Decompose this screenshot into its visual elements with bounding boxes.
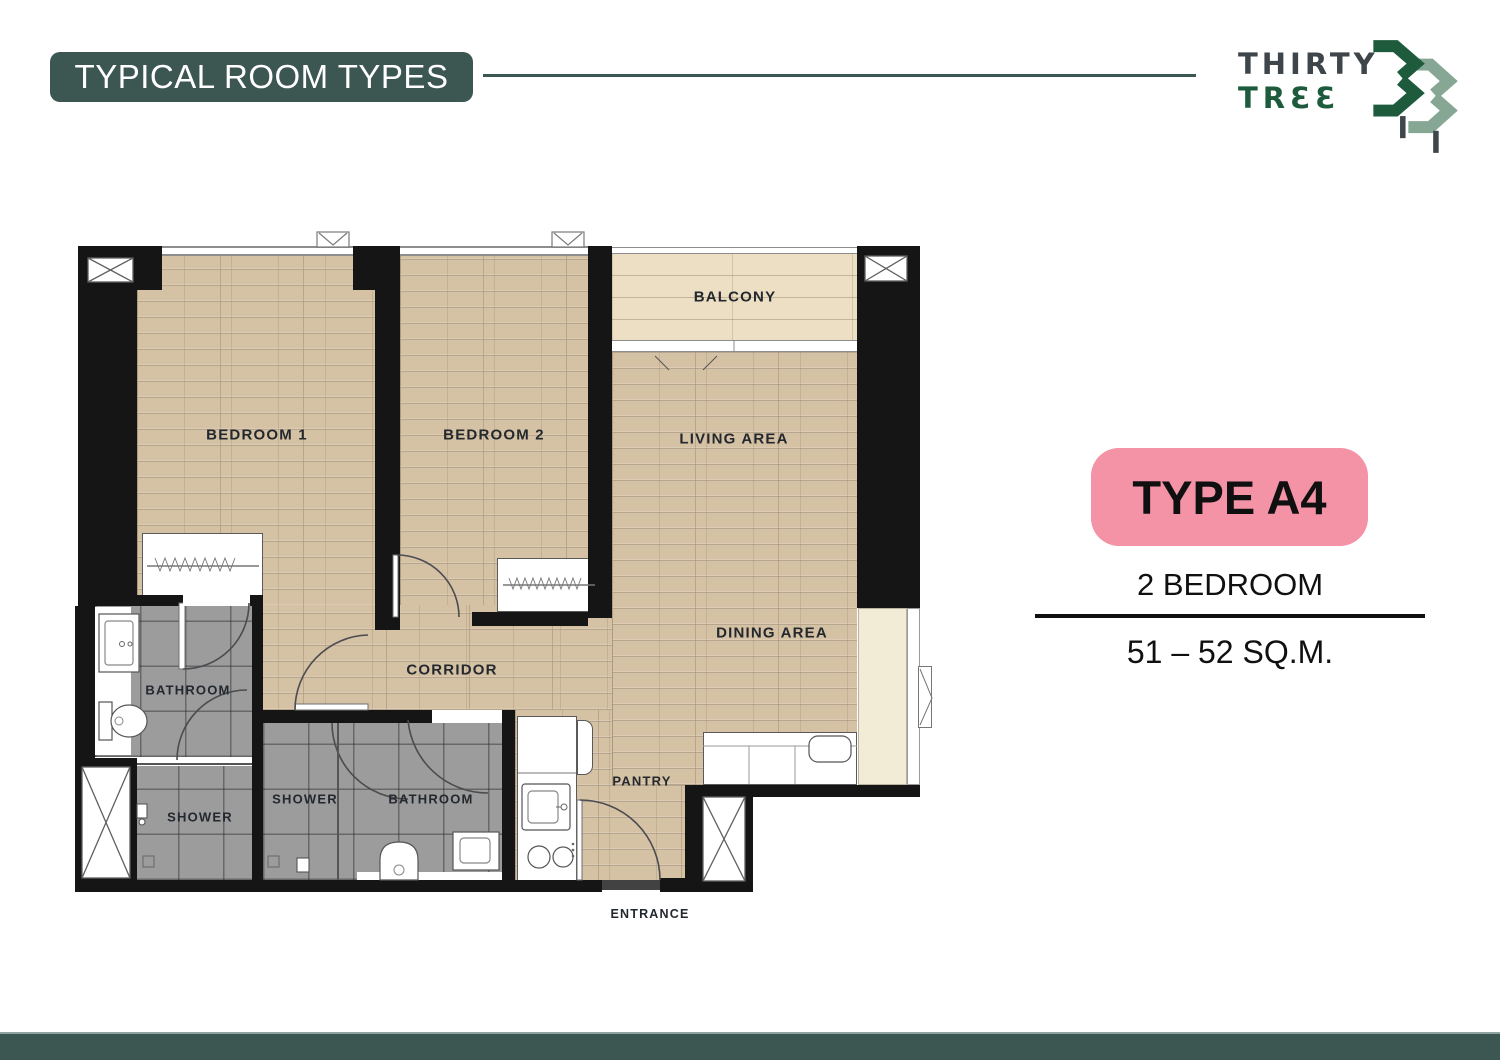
unit-type-badge: TYPE A4 xyxy=(1091,448,1368,546)
brand-name-top: THIRTY xyxy=(1238,47,1379,81)
label-bathroom1: BATHROOM xyxy=(145,683,230,698)
wall-bottom-left xyxy=(75,880,602,892)
label-shower1: SHOWER xyxy=(167,810,233,825)
label-bathroom2: BATHROOM xyxy=(388,792,473,807)
wall-bathroom1-right xyxy=(252,595,263,890)
side-casement-window xyxy=(918,666,932,728)
wall-bed2-bottom xyxy=(472,612,588,626)
wardrobe-bedroom2 xyxy=(497,558,600,612)
label-living-area: LIVING AREA xyxy=(679,431,788,448)
bedroom2-window xyxy=(400,246,588,256)
wall-bed2-living-divider xyxy=(588,246,612,618)
brochure-page: TYPICAL ROOM TYPES THIRTY TRƐƐ TYPE A4 2… xyxy=(0,0,1500,1060)
dining-counter xyxy=(703,732,857,785)
label-dining-area: DINING AREA xyxy=(716,625,828,642)
shaft2-block xyxy=(685,785,753,892)
kitchen-counter-end xyxy=(577,720,593,775)
label-bedroom1: BEDROOM 1 xyxy=(206,427,308,444)
wall-corner-top-left xyxy=(78,246,162,290)
wall-bathroom1-top-left xyxy=(88,595,183,606)
balcony-railing xyxy=(612,247,857,254)
bathroom1-vanity-strip xyxy=(95,607,131,755)
wall-shower2-top xyxy=(255,710,432,723)
wall-kitchen-left xyxy=(502,710,515,890)
unit-bedrooms-label: 2 BEDROOM xyxy=(1035,567,1425,603)
footer-bar xyxy=(0,1032,1500,1060)
wall-left-upper xyxy=(78,246,137,606)
window-marker-icon xyxy=(317,232,584,247)
balcony-sliding-door xyxy=(612,340,857,352)
label-balcony: BALCONY xyxy=(694,289,777,306)
label-bedroom2: BEDROOM 2 xyxy=(443,427,545,444)
page-title: TYPICAL ROOM TYPES xyxy=(75,58,449,96)
brand-name-bottom: TRƐƐ xyxy=(1238,81,1340,115)
living-dining-floor xyxy=(612,352,857,785)
unit-area-label: 51 – 52 SQ.M. xyxy=(1035,634,1425,671)
kitchen-counter xyxy=(517,716,577,882)
wall-bed1-bed2-divider xyxy=(375,258,400,630)
wall-right-upper xyxy=(857,246,920,608)
bedroom1-window xyxy=(162,246,353,256)
label-pantry: PANTRY xyxy=(612,774,671,789)
header-rule xyxy=(483,74,1196,77)
thirty-tree-33-icon xyxy=(1366,35,1458,153)
bathroom2-door-gap xyxy=(432,710,502,723)
label-entrance: ENTRANCE xyxy=(610,907,689,921)
floor-plan: BEDROOM 1 BEDROOM 2 LIVING AREA BALCONY … xyxy=(75,228,955,918)
label-shower2: SHOWER xyxy=(272,792,338,807)
info-divider xyxy=(1035,614,1425,618)
label-corridor: CORRIDOR xyxy=(406,662,497,679)
unit-type-label: TYPE A4 xyxy=(1132,470,1326,525)
built-in-cabinet xyxy=(858,608,907,785)
entrance-threshold xyxy=(602,880,660,890)
shaft1-block xyxy=(75,758,137,890)
page-title-box: TYPICAL ROOM TYPES xyxy=(50,52,473,102)
wardrobe-bedroom1 xyxy=(142,533,263,597)
